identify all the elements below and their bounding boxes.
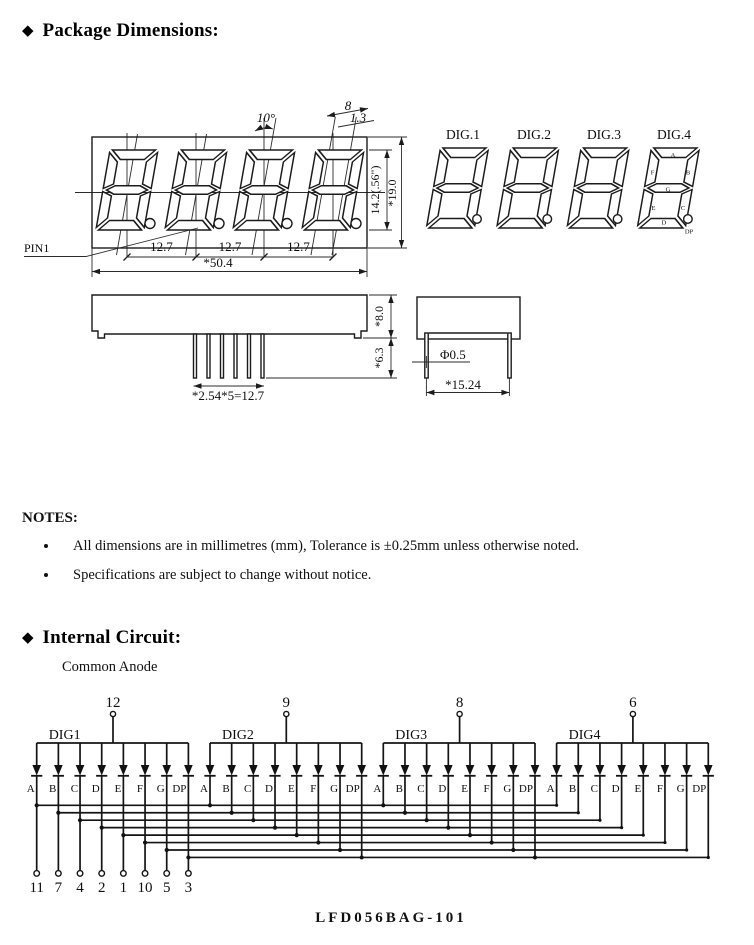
circuit-subtitle: Common Anode (62, 659, 157, 676)
led-diode-icon (76, 765, 85, 776)
svg-text:G: G (503, 783, 511, 795)
svg-text:8: 8 (456, 695, 464, 711)
pin (221, 334, 224, 378)
svg-text:D: D (612, 783, 620, 795)
digit-reference-drawing: DIG.1 DIG.2 DIG.3 DIG.4 ABCDEFGDP (426, 127, 699, 236)
circuit-content: 12DIG1A11B7C4D2E1F10G5DP39DIG2ABCDEFGDP8… (27, 695, 714, 896)
decimal-point (351, 219, 361, 229)
svg-text:DP: DP (172, 783, 186, 795)
section-title: Package Dimensions: (43, 20, 219, 42)
led-diode-icon (422, 765, 431, 776)
segment-letter: C (681, 205, 685, 212)
side-view-drawing: *8.0 *6.3 *2.54*5=12.7 (92, 295, 397, 403)
pin (207, 334, 210, 378)
decimal-point (473, 215, 482, 224)
pin-terminal (186, 871, 192, 877)
package-dimensions-drawing: 10° 8 1.3 14.2(.56") *19.0 12.7 12.7 12.… (0, 60, 754, 425)
svg-text:B: B (396, 783, 403, 795)
led-diode-icon (661, 765, 670, 776)
led-diode-icon (162, 765, 171, 776)
pin (234, 334, 237, 378)
end-view-drawing: Φ0.5 *15.24 (412, 297, 520, 396)
led-diode-icon (466, 765, 475, 776)
svg-text:DP: DP (692, 783, 706, 795)
dim-total-width: *50.4 (203, 255, 233, 270)
svg-text:DP: DP (519, 783, 533, 795)
svg-text:C: C (591, 783, 598, 795)
pin-terminal (99, 871, 105, 877)
led-diode-icon (509, 765, 518, 776)
front-view-drawing: 10° 8 1.3 14.2(.56") *19.0 12.7 12.7 12.… (24, 98, 407, 277)
led-diode-icon (206, 765, 215, 776)
led-diode-icon (574, 765, 583, 776)
dim-pin-row-span: *15.24 (445, 377, 481, 392)
svg-text:C: C (71, 783, 78, 795)
svg-text:G: G (677, 783, 685, 795)
led-diode-icon (32, 765, 41, 776)
svg-text:B: B (49, 783, 56, 795)
segment-letter: F (651, 170, 655, 177)
notes-section: NOTES: All dimensions are in millimetres… (22, 510, 722, 596)
svg-text:11: 11 (29, 880, 43, 896)
led-diode-icon (357, 765, 366, 776)
led-diode-icon (119, 765, 128, 776)
internal-circuit-diagram: 12DIG1A11B7C4D2E1F10G5DP39DIG2ABCDEFGDP8… (0, 690, 754, 905)
svg-text:E: E (635, 783, 642, 795)
dig3-label: DIG.3 (587, 127, 621, 142)
pin-terminal (77, 871, 83, 877)
pin (194, 334, 197, 378)
note-item: Specifications are subject to change wit… (59, 567, 722, 584)
svg-text:F: F (657, 783, 663, 795)
dim-body-height: *19.0 (385, 180, 399, 207)
svg-text:7: 7 (55, 880, 63, 896)
led-diode-icon (141, 765, 150, 776)
pin-terminal (34, 871, 40, 877)
led-diode-icon (227, 765, 236, 776)
dig1-label: DIG.1 (446, 127, 480, 142)
svg-text:4: 4 (76, 880, 84, 896)
dim-digit-pitch-1: 12.7 (150, 239, 173, 254)
led-diode-icon (336, 765, 345, 776)
svg-text:6: 6 (629, 695, 637, 711)
pin-terminal (56, 871, 62, 877)
decimal-point (282, 219, 292, 229)
dim-seg-thickness: 1.3 (350, 110, 367, 125)
led-diode-icon (54, 765, 63, 776)
svg-text:D: D (92, 783, 100, 795)
dim-digit-pitch-2: 12.7 (219, 239, 242, 254)
segment-letter: E (652, 205, 656, 212)
decimal-point (145, 219, 155, 229)
pin (425, 333, 428, 378)
svg-text:B: B (569, 783, 576, 795)
dim-tilt-angle: 10° (257, 110, 275, 125)
datasheet-page: ◆ Package Dimensions: (0, 0, 754, 945)
led-diode-icon (184, 765, 193, 776)
svg-text:C: C (417, 783, 424, 795)
svg-text:D: D (438, 783, 446, 795)
segment-letter: B (686, 170, 691, 177)
segment-letter: D (662, 220, 667, 227)
svg-text:DIG1: DIG1 (49, 728, 81, 743)
pin (248, 334, 251, 378)
dim-digit-pitch-3: 12.7 (287, 239, 310, 254)
svg-text:G: G (157, 783, 165, 795)
decimal-point (214, 219, 224, 229)
svg-text:5: 5 (163, 880, 171, 896)
led-diode-icon (596, 765, 605, 776)
pin (261, 334, 264, 378)
pin-terminal (284, 711, 289, 716)
circuit-digit-group: 12DIG1A11B7C4D2E1F10G5DP3 (27, 695, 194, 896)
note-item: All dimensions are in millimetres (mm), … (59, 538, 722, 555)
svg-text:DP: DP (346, 783, 360, 795)
dig4-label: DIG.4 (657, 127, 691, 142)
diamond-bullet-icon: ◆ (22, 631, 34, 646)
pin-terminal (121, 871, 127, 877)
pin-terminal (110, 711, 115, 716)
svg-text:12: 12 (106, 695, 121, 711)
decimal-point (543, 215, 552, 224)
svg-text:DIG3: DIG3 (395, 728, 427, 743)
notes-title: NOTES: (22, 510, 722, 527)
led-diode-icon (97, 765, 106, 776)
svg-text:A: A (547, 783, 555, 795)
decimal-point (613, 215, 622, 224)
dim-pin-length: *6.3 (372, 348, 386, 369)
dim-pin-diameter: Φ0.5 (440, 347, 466, 362)
pin-terminal (142, 871, 148, 877)
led-diode-icon (487, 765, 496, 776)
svg-text:E: E (288, 783, 295, 795)
dim-body-thickness: *8.0 (372, 306, 386, 327)
svg-text:2: 2 (98, 880, 106, 896)
led-diode-icon (314, 765, 323, 776)
svg-text:F: F (484, 783, 490, 795)
svg-text:A: A (200, 783, 208, 795)
led-diode-icon (249, 765, 258, 776)
section-header-package-dimensions: ◆ Package Dimensions: (22, 20, 219, 42)
svg-text:B: B (222, 783, 229, 795)
svg-text:E: E (115, 783, 122, 795)
segment-letter: G (666, 187, 671, 194)
part-number: LFD056BAG-101 (14, 910, 754, 927)
section-title: Internal Circuit: (43, 627, 182, 649)
pin-terminal (457, 711, 462, 716)
svg-text:F: F (137, 783, 143, 795)
dig2-label: DIG.2 (517, 127, 551, 142)
svg-text:9: 9 (283, 695, 291, 711)
decimal-point (684, 215, 693, 224)
svg-text:A: A (27, 783, 35, 795)
segment-letter: DP (685, 229, 694, 236)
led-diode-icon (531, 765, 540, 776)
svg-text:E: E (461, 783, 468, 795)
led-diode-icon (552, 765, 561, 776)
svg-text:DIG2: DIG2 (222, 728, 254, 743)
led-diode-icon (704, 765, 713, 776)
pin (508, 333, 511, 378)
pin-terminal (630, 711, 635, 716)
pin-terminal (164, 871, 170, 877)
diamond-bullet-icon: ◆ (22, 24, 34, 39)
svg-text:1: 1 (120, 880, 128, 896)
led-diode-icon (444, 765, 453, 776)
dim-pin-pitch: *2.54*5=12.7 (192, 388, 265, 403)
svg-text:3: 3 (185, 880, 193, 896)
led-diode-icon (682, 765, 691, 776)
svg-text:C: C (244, 783, 251, 795)
led-diode-icon (379, 765, 388, 776)
svg-text:F: F (310, 783, 316, 795)
pin1-label: PIN1 (24, 241, 49, 255)
svg-text:10: 10 (138, 880, 153, 896)
led-diode-icon (401, 765, 410, 776)
svg-text:DIG4: DIG4 (569, 728, 601, 743)
led-diode-icon (292, 765, 301, 776)
svg-text:G: G (330, 783, 338, 795)
led-diode-icon (271, 765, 280, 776)
svg-text:D: D (265, 783, 273, 795)
dim-digit-height: 14.2(.56") (368, 166, 382, 215)
section-header-internal-circuit: ◆ Internal Circuit: (22, 627, 181, 649)
led-diode-icon (639, 765, 648, 776)
segment-letter: A (671, 152, 676, 159)
led-diode-icon (617, 765, 626, 776)
svg-text:A: A (373, 783, 381, 795)
